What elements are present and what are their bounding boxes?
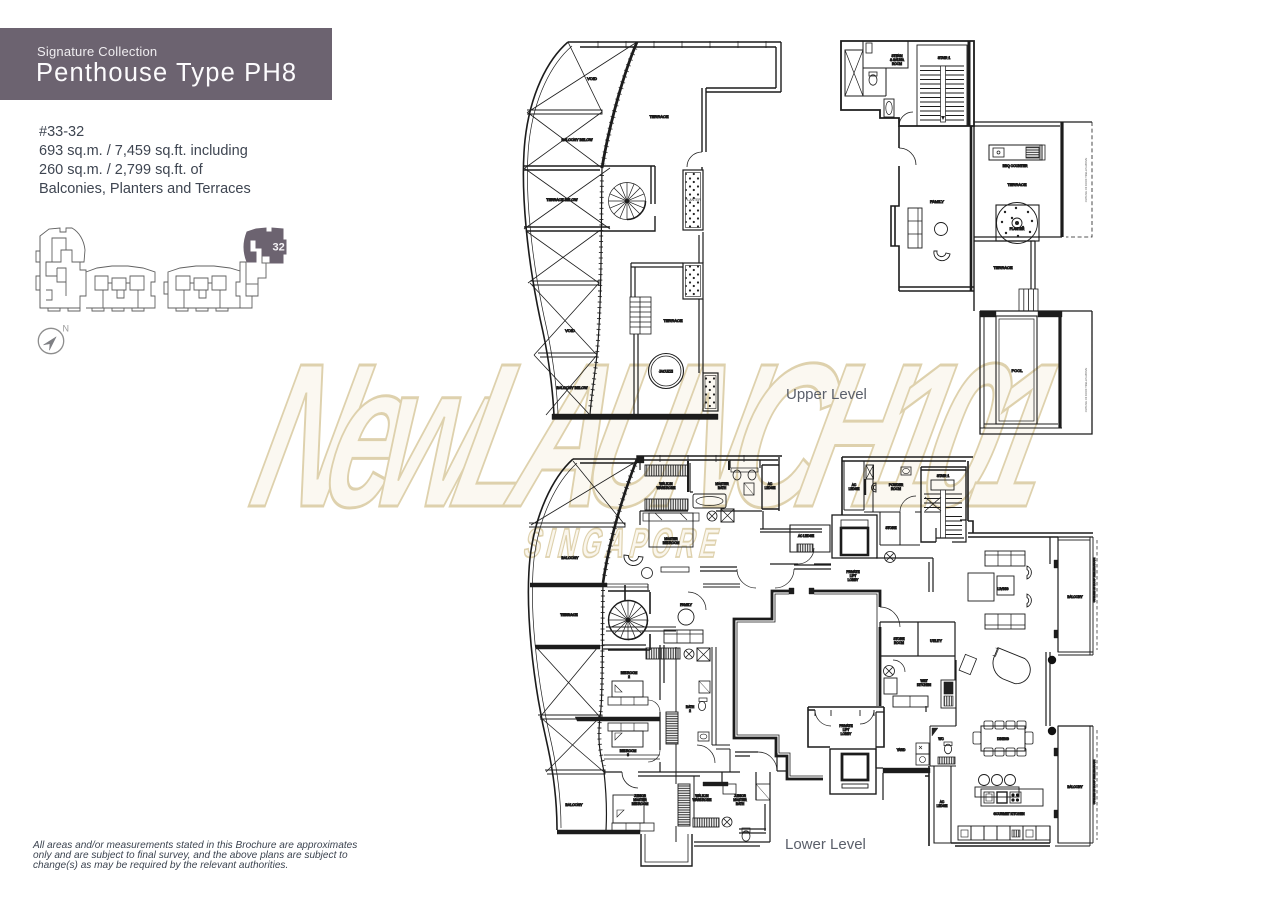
svg-text:STORE: STORE — [886, 526, 897, 530]
svg-text:TERRACE: TERRACE — [649, 114, 668, 119]
svg-text:FAMILY: FAMILY — [680, 603, 693, 607]
svg-text:LOBBY: LOBBY — [841, 732, 853, 736]
svg-text:YARD: YARD — [897, 748, 906, 752]
svg-text:AC LEDGE: AC LEDGE — [798, 534, 814, 538]
svg-text:BALCONY: BALCONY — [565, 803, 583, 807]
svg-text:BALCONY BELOW: BALCONY BELOW — [556, 386, 588, 390]
svg-text:LIVING: LIVING — [997, 587, 1008, 591]
svg-text:JACUZZI: JACUZZI — [659, 370, 673, 374]
svg-text:VOID: VOID — [565, 328, 575, 333]
svg-text:VOID: VOID — [587, 76, 597, 81]
svg-text:ROOM: ROOM — [892, 62, 902, 66]
svg-text:OUTLINE OF ROOF TRELLIS ABOVE: OUTLINE OF ROOF TRELLIS ABOVE — [1092, 759, 1096, 804]
svg-text:LEDGE: LEDGE — [765, 486, 776, 490]
svg-text:TERRACE BELOW: TERRACE BELOW — [546, 198, 578, 202]
svg-text:BALCONY: BALCONY — [1067, 785, 1083, 789]
svg-text:LOBBY: LOBBY — [848, 578, 860, 582]
svg-text:PLANTER: PLANTER — [1010, 227, 1025, 231]
svg-text:DINING: DINING — [997, 737, 1009, 741]
svg-text:OUTLINE OF ROOF TRELLIS ABOVE: OUTLINE OF ROOF TRELLIS ABOVE — [1084, 157, 1088, 202]
svg-text:LEDGE: LEDGE — [937, 804, 948, 808]
svg-text:STAIR 1: STAIR 1 — [938, 56, 951, 60]
svg-text:32: 32 — [273, 242, 285, 254]
svg-text:BALCONY: BALCONY — [561, 556, 579, 560]
svg-text:ROOM: ROOM — [891, 487, 901, 491]
svg-text:BALCONY: BALCONY — [1067, 595, 1083, 599]
svg-text:TERRACE: TERRACE — [1007, 182, 1026, 187]
svg-text:PLANTER: PLANTER — [685, 198, 701, 202]
svg-text:FAMILY: FAMILY — [930, 199, 944, 204]
svg-text:UTILITY: UTILITY — [930, 639, 943, 643]
svg-text:2: 2 — [628, 675, 630, 679]
svg-text:GOURMET KITCHEN: GOURMET KITCHEN — [993, 812, 1025, 816]
svg-text:BEDROOM: BEDROOM — [632, 802, 649, 806]
svg-text:BATH: BATH — [718, 486, 727, 490]
svg-text:STAIR 1: STAIR 1 — [937, 474, 950, 478]
svg-text:WARDROBE: WARDROBE — [657, 486, 676, 490]
svg-text:LEDGE: LEDGE — [849, 487, 860, 491]
svg-text:WC: WC — [938, 737, 944, 741]
svg-text:POOL: POOL — [1011, 368, 1023, 373]
svg-text:ROOM: ROOM — [894, 641, 904, 645]
svg-text:WARDROBE: WARDROBE — [693, 798, 712, 802]
svg-text:N: N — [63, 324, 70, 334]
svg-text:KITCHEN: KITCHEN — [917, 683, 932, 687]
svg-text:BALCONY BELOW: BALCONY BELOW — [561, 138, 593, 142]
svg-text:BBQ COUNTER: BBQ COUNTER — [1003, 164, 1028, 168]
svg-text:2: 2 — [689, 709, 691, 713]
svg-text:BATH: BATH — [736, 802, 745, 806]
svg-text:OUTLINE OF ROOF TRELLIS ABOVE: OUTLINE OF ROOF TRELLIS ABOVE — [1084, 367, 1088, 412]
svg-text:TERRACE: TERRACE — [663, 318, 682, 323]
svg-text:TERRACE: TERRACE — [560, 613, 578, 617]
svg-text:BEDROOM: BEDROOM — [663, 541, 680, 545]
svg-text:OUTLINE OF ROOF TRELLIS ABOVE: OUTLINE OF ROOF TRELLIS ABOVE — [1092, 557, 1096, 602]
svg-text:TERRACE: TERRACE — [993, 265, 1012, 270]
